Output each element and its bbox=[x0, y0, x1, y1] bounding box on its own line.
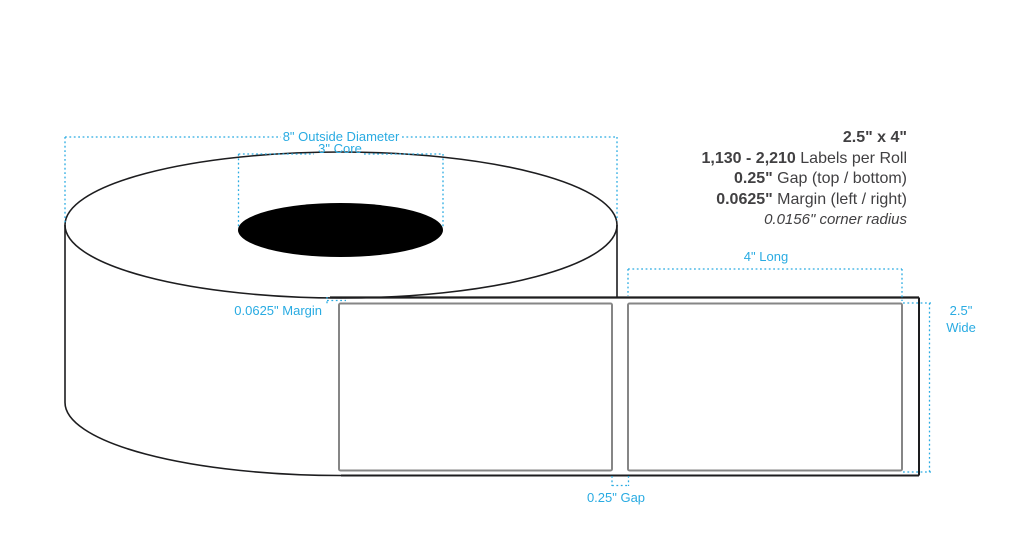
spec-gap: 0.25" Gap (top / bottom) bbox=[702, 169, 907, 190]
margin-label: 0.0625" Margin bbox=[182, 303, 322, 318]
wide-label-value: 2.5" bbox=[934, 302, 988, 319]
spec-corner-radius: 0.0156" corner radius bbox=[702, 210, 907, 231]
roll-core-hole bbox=[238, 203, 443, 257]
spec-panel: 2.5" x 4" 1,130 - 2,210 Labels per Roll … bbox=[702, 128, 907, 231]
diagram-canvas bbox=[0, 0, 1024, 555]
spec-margin-value: 0.0625" bbox=[716, 191, 773, 208]
spec-gap-value: 0.25" bbox=[734, 170, 773, 187]
label-roll-diagram: 8" Outside Diameter 3" Core 0.0625" Marg… bbox=[0, 0, 1024, 555]
spec-margin: 0.0625" Margin (left / right) bbox=[702, 190, 907, 211]
gap-dimension-line bbox=[612, 476, 629, 486]
spec-margin-text: Margin (left / right) bbox=[773, 191, 907, 208]
core-label: 3" Core bbox=[290, 141, 390, 156]
spec-size-value: 2.5" x 4" bbox=[843, 129, 907, 146]
spec-labels-per-roll: 1,130 - 2,210 Labels per Roll bbox=[702, 149, 907, 170]
long-dimension-line bbox=[628, 269, 902, 301]
label-rect-1 bbox=[339, 304, 612, 471]
spec-labels-per-roll-text: Labels per Roll bbox=[796, 150, 907, 167]
long-label: 4" Long bbox=[706, 249, 826, 264]
label-rect-2 bbox=[628, 304, 902, 471]
wide-dimension-line bbox=[903, 303, 931, 472]
wide-label-word: Wide bbox=[934, 319, 988, 336]
gap-label: 0.25" Gap bbox=[556, 490, 676, 505]
wide-label: 2.5" Wide bbox=[934, 302, 988, 336]
spec-size: 2.5" x 4" bbox=[702, 128, 907, 149]
spec-gap-text: Gap (top / bottom) bbox=[773, 170, 907, 187]
spec-labels-per-roll-value: 1,130 - 2,210 bbox=[702, 150, 796, 167]
